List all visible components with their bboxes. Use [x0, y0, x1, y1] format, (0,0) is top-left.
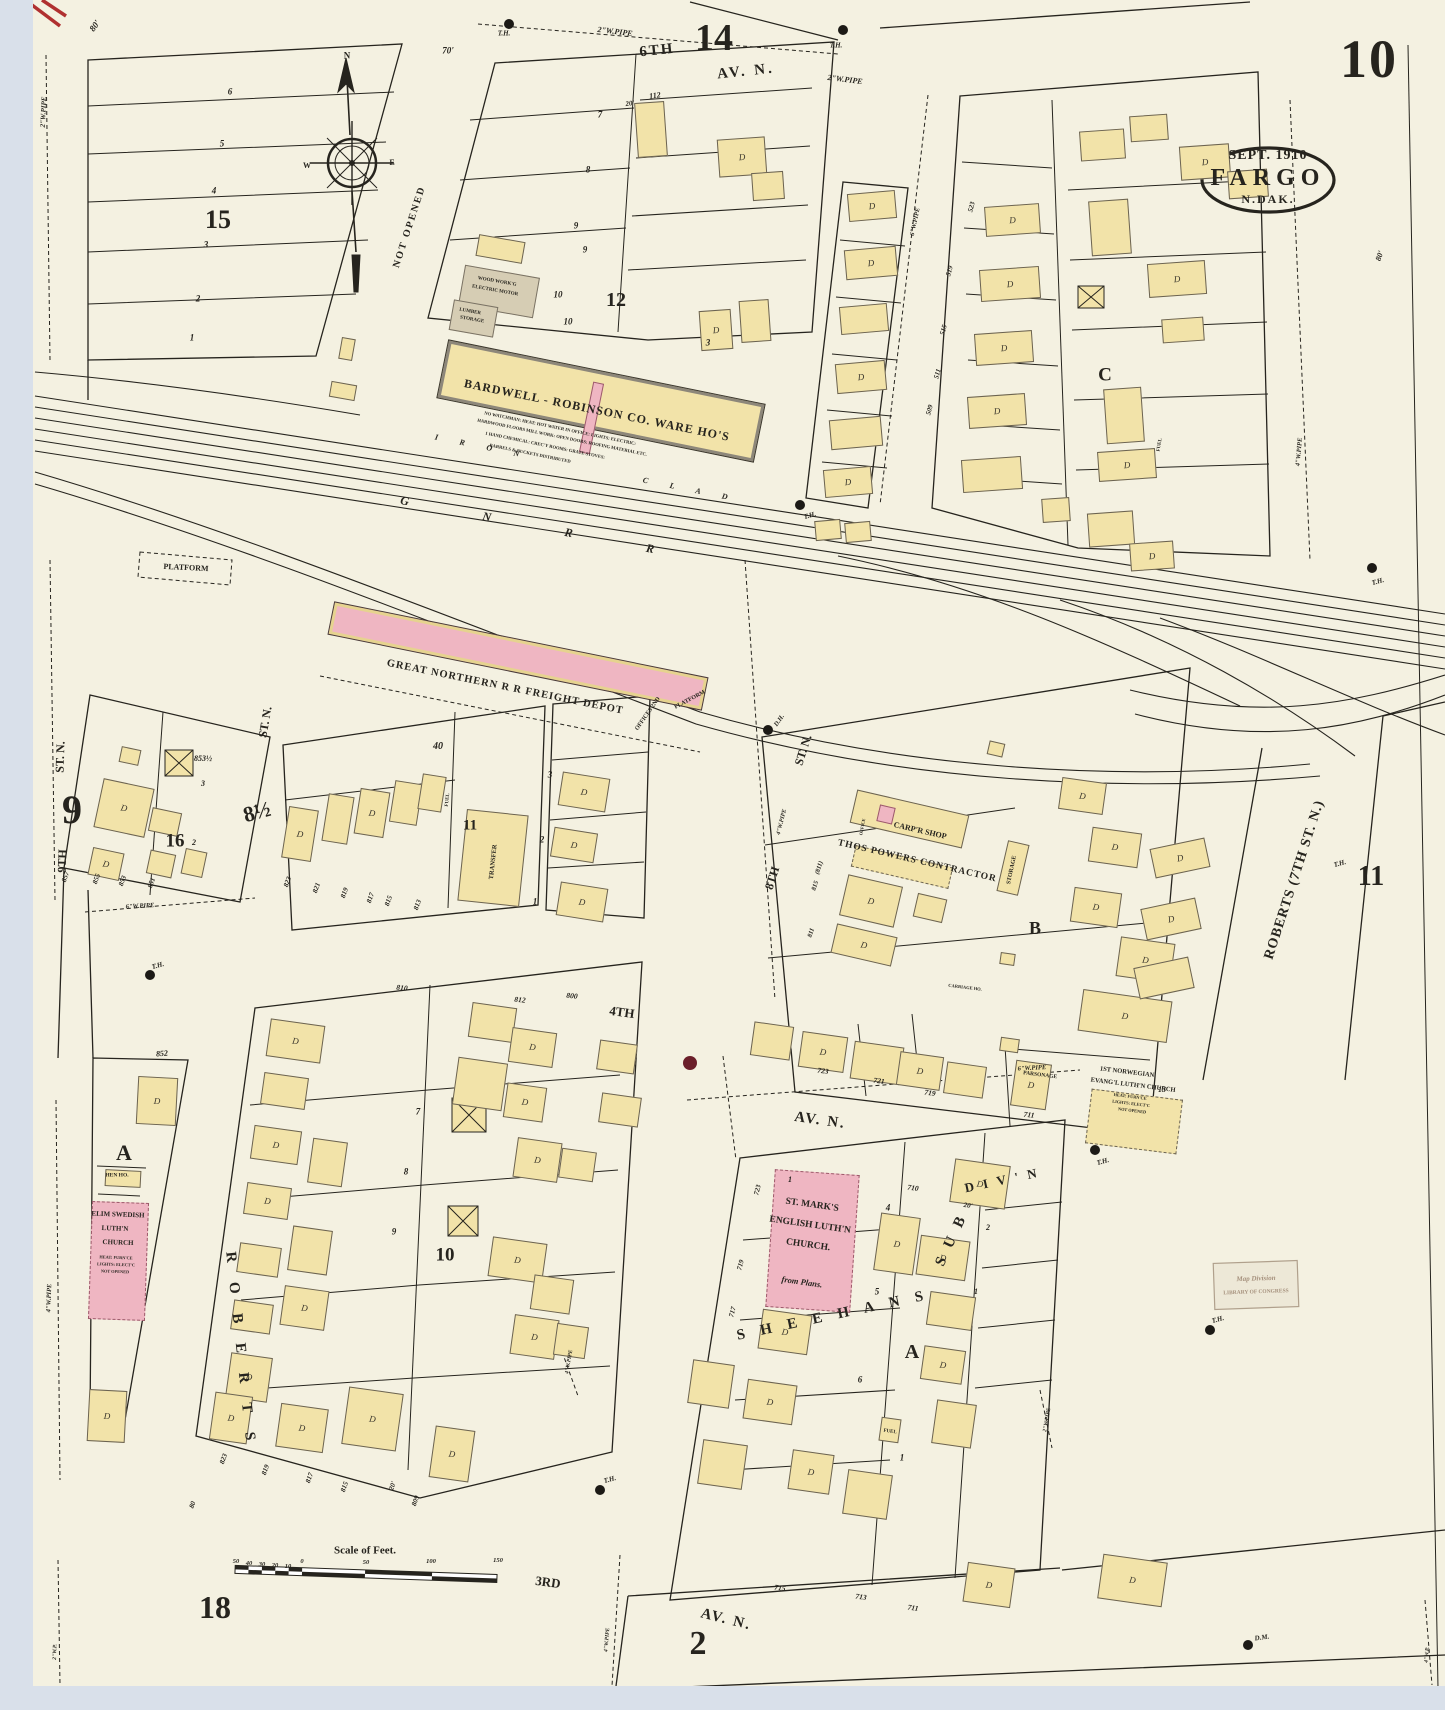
dim-label: 20' [963, 1202, 973, 1210]
house-number: 112 [649, 91, 662, 101]
dwelling-mark: D [102, 859, 110, 869]
scale-tick: 100 [426, 1559, 436, 1566]
dwelling-mark: D [578, 897, 586, 907]
dim-label: 70' [442, 47, 454, 56]
dwelling-mark: D [1079, 791, 1087, 801]
building [307, 1138, 348, 1187]
dwelling-mark: D [1123, 460, 1130, 469]
dwelling-mark: D [819, 1047, 827, 1057]
dwelling-mark: D [120, 803, 128, 813]
scale-tick: 20 [272, 1563, 279, 1570]
block-number-15: 15 [205, 207, 231, 233]
th-marker [145, 970, 155, 980]
sheet-number: 10 [1340, 28, 1398, 90]
bldg-label: HEN HO. [105, 1173, 128, 1179]
dwelling-mark: D [1121, 1011, 1129, 1021]
block-number-18: 18 [199, 1591, 231, 1623]
house-number: 800 [566, 992, 578, 1001]
building [739, 299, 772, 343]
house-number: 711 [907, 1604, 919, 1613]
dwelling-mark: D [1000, 343, 1007, 352]
dwelling-mark: D [916, 1066, 924, 1076]
building [829, 416, 883, 450]
building: D [717, 136, 768, 177]
block-number-2: 2 [690, 1627, 707, 1661]
dwelling-mark: D [580, 787, 588, 797]
dwelling-mark: D [1129, 1576, 1137, 1586]
lot-number: 4 [212, 187, 217, 196]
lot-number: 2 [540, 836, 545, 845]
building: D [1058, 777, 1107, 815]
building [814, 519, 842, 541]
compass-n: N [344, 52, 351, 61]
lot-number: 4 [886, 1204, 891, 1213]
house-number: 710 [907, 1184, 919, 1193]
building: D [847, 190, 897, 222]
dwelling-mark: D [448, 1449, 456, 1459]
dwelling-mark: D [1009, 215, 1016, 224]
building: D [279, 1285, 329, 1331]
publisher-stamp: SEPT. 1910 FARGO N.DAK. [1202, 148, 1334, 212]
scanner-edge-left [0, 0, 33, 1710]
building: D [1070, 887, 1122, 928]
house-number: 852 [156, 1049, 169, 1058]
building [558, 1148, 597, 1183]
dwelling-mark: D [868, 201, 875, 211]
building [634, 101, 668, 158]
th-label: T.H. [498, 31, 511, 38]
lot-number: 3 [548, 771, 553, 780]
building: D [979, 266, 1041, 302]
scale-title: Scale of Feet. [334, 1546, 396, 1557]
dm-marker [1243, 1640, 1253, 1650]
dwelling-mark: D [1167, 914, 1175, 924]
house-number: 711 [1023, 1111, 1035, 1120]
loc-stamp-line1: Map Division [1236, 1275, 1275, 1283]
building: D [503, 1082, 547, 1122]
compass-w: W [303, 162, 311, 170]
red-pen-marks [28, 0, 66, 26]
scale-tick: 30 [259, 1562, 266, 1569]
lot-number: 2 [986, 1224, 990, 1232]
building [468, 1002, 517, 1043]
sanborn-map-sheet: 10 SEPT. 1910 FARGO N.DAK. DDDDDDDDDDDDD… [0, 0, 1445, 1710]
building: D [250, 1125, 302, 1165]
stamp-date: SEPT. 1910 [1202, 148, 1334, 164]
building [1079, 128, 1126, 161]
th-marker [795, 500, 805, 510]
building: D [699, 309, 734, 351]
dwelling-mark: D [1148, 551, 1155, 560]
house-number: 719 [924, 1089, 936, 1098]
th-marker [1367, 563, 1377, 573]
dwelling-mark: D [893, 1239, 901, 1249]
building: D [341, 1386, 404, 1451]
building [931, 1399, 977, 1448]
lot-number: 6 [228, 88, 233, 97]
dwelling-mark: D [860, 940, 868, 950]
street-9-stn: ST. N. [53, 741, 66, 773]
street-9th: 9TH [56, 849, 69, 873]
block-number-11: 11 [1358, 863, 1384, 891]
lot-number: 1 [974, 1288, 978, 1296]
dwelling-mark: D [985, 1580, 993, 1590]
block-number-14: 14 [695, 19, 733, 57]
building: D [275, 1403, 329, 1453]
building: D [1088, 827, 1142, 869]
dwelling-mark: D [867, 258, 874, 268]
block-letter-c: C [1098, 366, 1112, 385]
building: D [93, 778, 154, 838]
building: D [1097, 448, 1157, 482]
th-marker [1090, 1145, 1100, 1155]
dwelling-mark: D [514, 1255, 522, 1265]
lot-number: 9 [392, 1228, 397, 1237]
dwelling-mark: D [369, 1414, 377, 1424]
dwelling-mark: D [531, 1332, 539, 1342]
building [530, 1274, 574, 1314]
building: D [967, 393, 1027, 429]
loc-stamp-box [1213, 1261, 1299, 1310]
dwelling-mark: D [1111, 843, 1119, 853]
dwelling-mark: D [939, 1360, 947, 1370]
dwelling-mark: D [993, 406, 1000, 415]
lot-number: 3 [204, 241, 209, 250]
lot-number: 2 [192, 839, 196, 847]
lot-number: 8 [404, 1168, 409, 1177]
building [751, 171, 785, 201]
building: D [87, 1389, 128, 1443]
building [943, 1061, 987, 1098]
house-number: 853½ [194, 755, 212, 763]
lot-number: 40 [433, 742, 443, 752]
lot-number: 1 [190, 334, 195, 343]
dim-label: 20' [625, 100, 635, 108]
building: D [558, 771, 611, 812]
lot-number: 2 [196, 295, 201, 304]
building [287, 1225, 333, 1275]
lot-number: 10 [564, 318, 573, 327]
scale-tick: 50 [233, 1559, 240, 1566]
dh-marker [763, 725, 773, 735]
building [1087, 510, 1135, 547]
th-marker [1205, 1325, 1215, 1335]
dwelling-mark: D [1092, 903, 1100, 913]
building [596, 1040, 638, 1075]
dwelling-mark: D [227, 1413, 235, 1423]
lot-number: 1 [900, 1454, 905, 1463]
street-3rd: 3RD [535, 1574, 562, 1590]
dwelling-mark: D [534, 1155, 542, 1165]
dwelling-mark: D [521, 1098, 529, 1108]
dwelling-mark: D [857, 372, 864, 382]
building [999, 1037, 1020, 1054]
dwelling-mark: D [368, 808, 376, 818]
th-marker [838, 25, 848, 35]
lot-number: 5 [875, 1288, 880, 1297]
building [1161, 317, 1205, 344]
th-marker [595, 1485, 605, 1495]
building [687, 1359, 735, 1408]
building: D [823, 466, 873, 498]
street-9: 9 [62, 790, 82, 830]
building [1088, 199, 1132, 257]
lot-number: 3 [706, 339, 711, 348]
dwelling-mark: D [301, 1303, 309, 1313]
pipe-label: 2"W.P. [53, 1644, 59, 1660]
block-letter-a: A [116, 1142, 132, 1164]
house-number: 715 [774, 1584, 786, 1593]
block-number-10: 10 [436, 1246, 455, 1265]
scale-tick: 0 [300, 1559, 303, 1566]
pipe-label: 4"W.PIPE [46, 1284, 53, 1313]
house-number: 713 [855, 1593, 867, 1602]
building [452, 1057, 508, 1111]
building [926, 1291, 976, 1331]
building [839, 303, 889, 335]
lot-number: 9 [574, 222, 579, 231]
block-number-12: 12 [606, 290, 626, 310]
building [1129, 114, 1169, 143]
compass-e: E [389, 159, 394, 167]
dwelling-mark: D [104, 1411, 111, 1420]
building [842, 1469, 893, 1520]
lot-number: 7 [598, 111, 603, 120]
building: D [873, 1212, 921, 1275]
church-name: LUTH'N [101, 1225, 128, 1233]
building: D [429, 1425, 476, 1482]
building: D [920, 1345, 966, 1385]
building: D [1097, 1554, 1168, 1608]
building [697, 1439, 748, 1490]
dwelling-mark: D [298, 1423, 306, 1433]
building [1103, 387, 1145, 445]
building: D [962, 1562, 1015, 1608]
building: D [844, 246, 898, 280]
dwelling-mark: D [1176, 853, 1184, 863]
church-name: CHURCH [102, 1239, 133, 1247]
block-number-11s: 11 [463, 819, 477, 834]
building: D [974, 330, 1034, 366]
building [961, 456, 1023, 493]
th-marker [504, 19, 514, 29]
block-letter-b: B [1029, 919, 1041, 937]
stamp-state: N.DAK. [1202, 192, 1334, 207]
dwelling-mark: D [154, 1096, 161, 1105]
dwelling-mark: D [712, 325, 719, 334]
scale-tick: 10 [285, 1564, 292, 1571]
building [260, 1072, 309, 1110]
dwelling-mark: D [296, 829, 304, 839]
dwelling-mark: D [1173, 274, 1180, 283]
th-label: T.H. [830, 43, 843, 50]
dwelling-mark: D [272, 1140, 280, 1150]
building: D [1147, 260, 1207, 298]
lot-number: 9 [583, 246, 588, 255]
street-4th: 4TH [609, 1004, 636, 1020]
lot-number: 5 [220, 140, 225, 149]
lot-number: 3 [201, 780, 205, 788]
building [236, 1242, 282, 1278]
lot-number: 8 [586, 166, 591, 175]
building: D [742, 1379, 797, 1426]
building [844, 521, 872, 543]
dwelling-mark: D [844, 477, 851, 487]
house-number: 721 [873, 1077, 885, 1086]
building: D [508, 1027, 557, 1068]
stamp-city: FARGO [1202, 165, 1334, 192]
house-number: 723 [817, 1067, 829, 1076]
block-number-16: 16 [166, 832, 185, 851]
scale-tick: 40 [246, 1561, 253, 1568]
building: D [984, 203, 1041, 237]
dwelling-mark: D [570, 840, 578, 850]
hydrant-marker [683, 1056, 697, 1070]
building [750, 1021, 794, 1060]
dwelling-mark: D [1142, 955, 1150, 965]
building: D [266, 1018, 326, 1063]
dwelling-mark: D [867, 896, 875, 906]
house-number: 810 [396, 984, 408, 993]
compass-rose [310, 58, 394, 292]
building: D [835, 360, 887, 394]
dwelling-mark: D [529, 1043, 537, 1053]
dwelling-mark: D [264, 1196, 272, 1206]
dwelling-mark: D [1006, 279, 1013, 288]
house-number: 812 [514, 996, 526, 1005]
lot-number: 6 [858, 1376, 863, 1385]
scale-tick: 150 [493, 1558, 503, 1565]
building [146, 850, 176, 879]
building: D [896, 1051, 944, 1091]
dwelling-mark: D [738, 152, 745, 161]
scale-tick: 50 [363, 1560, 370, 1567]
dwelling-mark: D [766, 1397, 774, 1407]
building: D [136, 1076, 178, 1126]
dwelling-mark: D [807, 1467, 815, 1477]
lot-number: 7 [416, 1108, 421, 1117]
lot-number: 10 [554, 291, 563, 300]
building: D [787, 1449, 834, 1494]
building: D [556, 881, 609, 922]
scanner-edge-bottom [0, 1686, 1445, 1710]
block-letter-a-sub: A [905, 1342, 919, 1362]
building: D [243, 1182, 292, 1220]
building [598, 1092, 642, 1127]
lot-number: 13 [1158, 1086, 1166, 1094]
lot-number: 1 [788, 1176, 792, 1184]
building: D [512, 1137, 562, 1183]
building [999, 952, 1016, 966]
lot-number: 1 [533, 898, 538, 907]
dwelling-mark: D [292, 1036, 300, 1046]
dwelling-mark: D [1027, 1080, 1035, 1090]
building [1041, 497, 1071, 523]
building: D [1129, 540, 1175, 571]
